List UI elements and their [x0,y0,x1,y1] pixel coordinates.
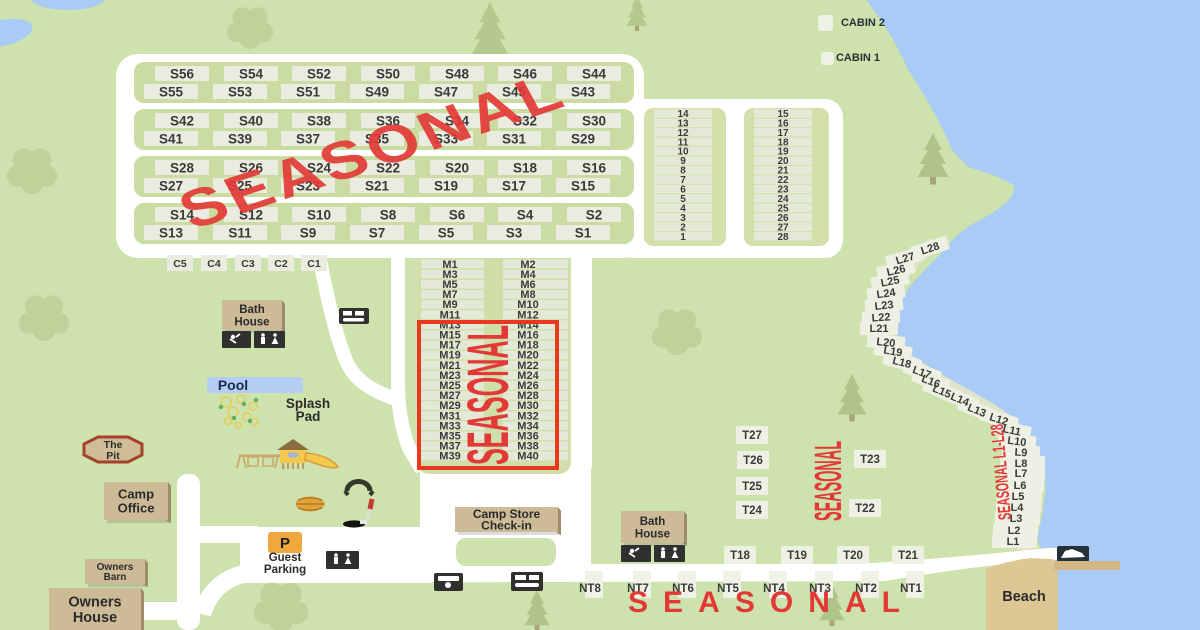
svg-text:T27: T27 [742,430,762,442]
svg-text:S41: S41 [159,132,184,147]
svg-text:S17: S17 [502,179,526,194]
svg-text:S39: S39 [228,132,252,147]
svg-text:S4: S4 [517,208,534,223]
svg-text:Pit: Pit [106,450,120,462]
svg-text:Barn: Barn [104,572,127,583]
svg-text:S8: S8 [380,208,397,223]
svg-text:Pad: Pad [296,409,321,424]
svg-text:Check-in: Check-in [481,519,532,533]
svg-text:S38: S38 [307,114,332,129]
svg-text:C2: C2 [274,258,288,270]
svg-text:C5: C5 [173,258,187,270]
svg-text:C1: C1 [307,258,321,270]
svg-text:House: House [635,528,670,540]
svg-text:S7: S7 [369,226,386,241]
svg-text:C4: C4 [207,258,221,270]
svg-text:L7: L7 [1015,468,1028,480]
svg-text:S6: S6 [449,208,466,223]
svg-text:NT1: NT1 [900,583,922,595]
svg-text:S30: S30 [582,114,606,129]
svg-text:S13: S13 [159,226,184,241]
svg-text:S18: S18 [513,161,538,176]
svg-text:Beach: Beach [1002,589,1046,605]
svg-text:T21: T21 [898,550,918,562]
svg-text:Camp: Camp [118,487,154,502]
svg-text:T23: T23 [860,454,880,466]
svg-text:S5: S5 [438,226,455,241]
svg-text:S9: S9 [300,226,317,241]
svg-text:S55: S55 [159,85,184,100]
svg-text:Parking: Parking [264,564,306,576]
svg-text:House: House [73,610,117,626]
svg-text:T18: T18 [730,550,750,562]
svg-text:1: 1 [680,232,686,243]
svg-text:S10: S10 [307,208,331,223]
svg-text:House: House [234,316,269,328]
svg-text:Guest: Guest [269,552,302,564]
svg-text:S44: S44 [582,67,607,82]
svg-text:S3: S3 [506,226,523,241]
svg-text:28: 28 [777,232,789,243]
svg-text:S16: S16 [582,161,607,176]
svg-text:S53: S53 [228,85,253,100]
svg-text:S40: S40 [239,114,263,129]
svg-text:T22: T22 [855,503,875,515]
svg-text:T25: T25 [742,481,762,493]
svg-text:S42: S42 [170,114,194,129]
svg-text:S15: S15 [571,179,596,194]
svg-text:S29: S29 [571,132,595,147]
svg-text:Bath: Bath [239,304,265,316]
svg-text:S20: S20 [445,161,469,176]
svg-text:P: P [280,535,290,552]
svg-text:T26: T26 [743,455,763,467]
svg-text:NT8: NT8 [579,583,601,595]
svg-text:S51: S51 [296,85,321,100]
svg-text:C3: C3 [241,258,255,270]
svg-text:T19: T19 [787,550,807,562]
svg-text:S28: S28 [170,161,195,176]
svg-text:Office: Office [118,501,155,516]
svg-text:S52: S52 [307,67,331,82]
svg-text:S50: S50 [376,67,400,82]
svg-text:CABIN 1: CABIN 1 [836,52,880,64]
svg-text:SEASONAL: SEASONAL [808,441,850,521]
svg-text:S1: S1 [575,226,592,241]
svg-text:SEASONAL: SEASONAL [456,325,521,465]
svg-text:CABIN 2: CABIN 2 [841,17,885,29]
svg-text:Pool: Pool [218,377,248,393]
svg-text:S54: S54 [239,67,264,82]
svg-text:S49: S49 [365,85,389,100]
svg-text:Bath: Bath [640,516,666,528]
svg-text:L21: L21 [870,323,889,335]
svg-text:S48: S48 [445,67,470,82]
svg-text:S2: S2 [586,208,603,223]
svg-text:T24: T24 [742,505,762,517]
svg-text:S43: S43 [571,85,596,100]
svg-text:T20: T20 [843,550,863,562]
svg-text:Owners: Owners [68,594,121,610]
svg-text:L1: L1 [1007,536,1020,548]
svg-text:S56: S56 [170,67,195,82]
svg-text:S19: S19 [434,179,458,194]
